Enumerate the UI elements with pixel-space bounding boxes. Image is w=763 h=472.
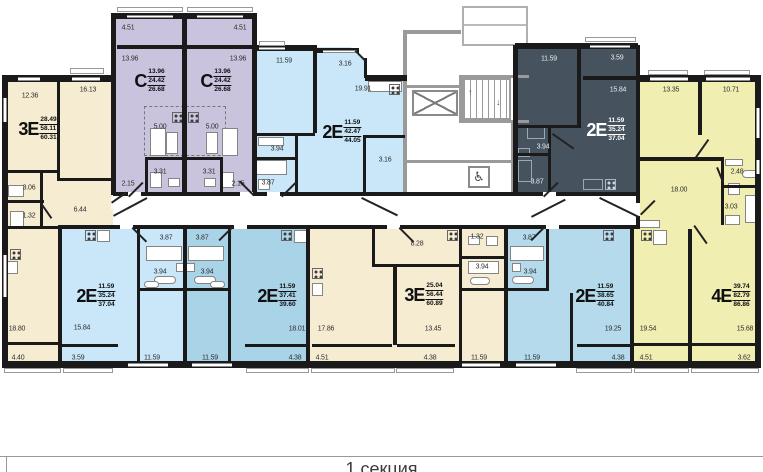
stove-burners-icon bbox=[605, 179, 616, 190]
fixture bbox=[583, 179, 603, 190]
fixture bbox=[168, 178, 180, 187]
wall bbox=[187, 157, 223, 160]
balcony-rail bbox=[311, 368, 395, 373]
wall bbox=[393, 264, 397, 345]
room-area-label: 10.71 bbox=[723, 87, 740, 94]
wall bbox=[2, 361, 761, 368]
wall bbox=[137, 288, 185, 291]
window bbox=[3, 98, 7, 122]
room-area-label: 18.80 bbox=[9, 326, 26, 333]
wall bbox=[313, 47, 317, 133]
wall bbox=[577, 344, 632, 347]
wall bbox=[546, 229, 549, 290]
fixture bbox=[210, 281, 225, 288]
room-area-label: 12.36 bbox=[22, 93, 39, 100]
window bbox=[756, 108, 760, 138]
floor-plan-screenshot: ↑ ↓ ♿ 3Е 28.4958.1160.31 С 13.9624.4226.… bbox=[0, 0, 763, 472]
room-area-label: 3.87 bbox=[531, 179, 544, 186]
wall bbox=[145, 157, 183, 160]
apartment-type: 2Е bbox=[586, 121, 606, 139]
room-area-label: 3.06 bbox=[23, 185, 36, 192]
wall bbox=[459, 229, 462, 361]
fixture bbox=[470, 277, 490, 285]
fixture bbox=[510, 246, 544, 261]
wall bbox=[363, 135, 366, 195]
fixture bbox=[512, 263, 521, 272]
room-area-label: 3.03 bbox=[725, 204, 738, 211]
stairs-up-arrow-icon: ↑ bbox=[468, 88, 473, 97]
window bbox=[650, 77, 688, 81]
window bbox=[197, 15, 243, 18]
room-area-label: 1.32 bbox=[23, 213, 36, 220]
balcony-rail bbox=[63, 368, 113, 373]
wall bbox=[513, 45, 518, 192]
stove-burners-icon bbox=[312, 268, 323, 279]
apartment-type: 3Е bbox=[404, 286, 424, 304]
apartment-type: 2Е bbox=[322, 123, 342, 141]
wall bbox=[636, 157, 724, 161]
room-area-label: 11.59 bbox=[541, 56, 557, 63]
window bbox=[323, 50, 357, 53]
wall bbox=[183, 225, 187, 367]
room-area-label: 16.13 bbox=[80, 87, 97, 94]
fixture bbox=[512, 276, 534, 284]
wall bbox=[633, 343, 690, 346]
stair-core-wall bbox=[459, 120, 529, 123]
room-area-label: 15.84 bbox=[74, 325, 91, 332]
stair-core-wall bbox=[403, 30, 461, 34]
fixture bbox=[188, 246, 224, 261]
window bbox=[516, 363, 556, 367]
room-area-label: 2.15 bbox=[232, 181, 245, 188]
fixture bbox=[725, 215, 740, 225]
wall bbox=[365, 75, 407, 81]
section-divider-tick bbox=[6, 456, 7, 472]
fixture bbox=[150, 128, 166, 156]
wall bbox=[187, 45, 253, 49]
stairs-icon bbox=[462, 78, 511, 120]
window bbox=[756, 160, 760, 174]
wall bbox=[117, 45, 183, 49]
room-area-label: 19.91 bbox=[355, 86, 372, 93]
room-area-label: 3.94 bbox=[524, 269, 537, 276]
room-area-label: 3.16 bbox=[339, 61, 352, 68]
wall bbox=[57, 178, 115, 181]
stove-burners-icon bbox=[447, 230, 458, 241]
fixture bbox=[312, 283, 323, 296]
balcony-rail bbox=[259, 41, 285, 46]
fixture bbox=[653, 230, 667, 245]
elevator-icon bbox=[412, 90, 458, 116]
balcony-rail bbox=[691, 368, 759, 373]
wall bbox=[459, 288, 508, 291]
stove-burners-icon bbox=[10, 249, 21, 260]
stair-core-wall bbox=[403, 160, 515, 163]
apartment-type: 2Е bbox=[257, 287, 277, 305]
room-area-label: 4.38 bbox=[424, 355, 437, 362]
section-divider-line bbox=[0, 456, 763, 457]
wall bbox=[4, 342, 61, 345]
door-opening bbox=[234, 225, 247, 229]
apartment-label-2e-d: 2Е 11.5937.4139.60 bbox=[257, 283, 296, 309]
room-area-label: 3.87 bbox=[523, 235, 536, 242]
balcony-rail bbox=[187, 7, 253, 12]
window bbox=[18, 77, 40, 81]
wall bbox=[508, 288, 549, 291]
section-title: 1 секция bbox=[345, 459, 417, 472]
stove-burners-icon bbox=[188, 112, 199, 123]
room-area-label: 1.32 bbox=[471, 234, 484, 241]
room-area-label: 3.59 bbox=[611, 55, 624, 62]
room-area-label: 4.51 bbox=[640, 355, 653, 362]
room-area-label: 3.94 bbox=[476, 264, 489, 271]
balcony-rail bbox=[70, 68, 104, 74]
window bbox=[259, 47, 285, 50]
room-area-label: 3.87 bbox=[160, 235, 173, 242]
room-area-label: 3.87 bbox=[262, 180, 275, 187]
wall bbox=[312, 344, 392, 347]
wall bbox=[40, 170, 43, 228]
room-area-label: 4.38 bbox=[289, 355, 302, 362]
room-area-label: 3.16 bbox=[379, 157, 392, 164]
room-area-label: 3.31 bbox=[154, 169, 167, 176]
stove-burners-icon bbox=[641, 230, 652, 241]
wall bbox=[698, 75, 702, 135]
room-area-label: 11.59 bbox=[471, 355, 487, 362]
wall bbox=[690, 343, 760, 346]
shaft-top-outline bbox=[462, 6, 528, 46]
wall bbox=[228, 229, 231, 361]
stair-core-wall bbox=[459, 75, 529, 78]
apartment-areas: 11.5935.2437.04 bbox=[607, 117, 625, 143]
wall bbox=[397, 344, 455, 347]
window bbox=[706, 77, 750, 81]
balcony-rail bbox=[704, 70, 750, 75]
room-area-label: 3.31 bbox=[203, 169, 216, 176]
apartment-type: С bbox=[134, 72, 146, 90]
wall bbox=[4, 200, 44, 203]
apartment-type: С bbox=[200, 72, 212, 90]
room-area-label: 11.59 bbox=[524, 355, 540, 362]
wall bbox=[145, 157, 148, 195]
fixture bbox=[186, 263, 195, 272]
wall bbox=[721, 185, 760, 188]
apartment-areas: 13.9624.4226.68 bbox=[213, 68, 231, 94]
window bbox=[192, 363, 232, 367]
room-area-label: 4.40 bbox=[12, 355, 25, 362]
room-area-label: 5.00 bbox=[206, 124, 219, 131]
stove-burners-icon bbox=[389, 84, 400, 95]
balcony-rail bbox=[117, 7, 183, 12]
shaft-divider bbox=[464, 24, 526, 26]
balcony-rail bbox=[585, 37, 636, 42]
window bbox=[72, 77, 100, 81]
room-area-label: 15.68 bbox=[737, 326, 754, 333]
wall bbox=[62, 344, 118, 347]
window bbox=[127, 15, 173, 18]
apartment-type: 2Е bbox=[575, 287, 595, 305]
room-area-label: 3.59 bbox=[72, 355, 85, 362]
corridor-floor bbox=[116, 196, 636, 225]
fixture bbox=[222, 128, 238, 156]
apartment-areas: 11.5938.6540.84 bbox=[596, 283, 614, 309]
balcony-rail bbox=[634, 368, 689, 373]
room-area-label: 13.35 bbox=[663, 87, 680, 94]
balcony-rail bbox=[576, 368, 632, 373]
wall bbox=[245, 344, 306, 347]
apartment-areas: 11.5942.4744.05 bbox=[343, 119, 361, 145]
room-area-label: 2.48 bbox=[731, 169, 744, 176]
wall bbox=[137, 229, 140, 361]
wheelchair-accessible-icon: ♿ bbox=[468, 166, 490, 188]
apartment-label-4e-a: 4Е 39.7482.7986.86 bbox=[711, 283, 750, 309]
door-opening bbox=[267, 192, 280, 196]
apartment-area-3e-a[interactable] bbox=[40, 181, 113, 229]
fixture bbox=[256, 160, 287, 175]
wall bbox=[111, 13, 116, 195]
wall bbox=[295, 133, 298, 195]
apartment-areas: 13.9624.4226.68 bbox=[147, 68, 165, 94]
fixture bbox=[206, 132, 218, 154]
stair-core-wall bbox=[403, 30, 407, 194]
wall bbox=[548, 125, 551, 192]
wall bbox=[375, 264, 462, 267]
room-area-label: 4.51 bbox=[122, 25, 135, 32]
apartment-areas: 25.0456.4460.89 bbox=[425, 282, 443, 308]
fixture bbox=[144, 281, 159, 288]
fixture bbox=[725, 159, 743, 166]
room-area-label: 3.94 bbox=[154, 269, 167, 276]
window bbox=[3, 255, 7, 297]
wall bbox=[182, 13, 187, 195]
apartment-type: 4Е bbox=[711, 287, 731, 305]
stair-core-wall bbox=[459, 75, 462, 123]
stove-burners-icon bbox=[85, 230, 96, 241]
apartment-area-s-a[interactable] bbox=[115, 13, 185, 195]
wall bbox=[636, 45, 640, 229]
wall bbox=[517, 125, 577, 128]
window bbox=[590, 45, 630, 48]
window bbox=[128, 363, 168, 367]
wall bbox=[583, 76, 636, 80]
room-area-label: 3.87 bbox=[196, 235, 209, 242]
fixture bbox=[486, 236, 498, 246]
room-area-label: 3.94 bbox=[201, 269, 214, 276]
room-area-label: 2.15 bbox=[122, 181, 135, 188]
apartment-type: 2Е bbox=[76, 287, 96, 305]
wall bbox=[363, 135, 405, 138]
room-area-label: 13.45 bbox=[425, 326, 442, 333]
apartment-label-2e-b: 2Е 11.5935.2437.04 bbox=[586, 117, 625, 143]
room-area-label: 15.84 bbox=[610, 87, 627, 94]
apartment-label-2e-e: 2Е 11.5938.6540.84 bbox=[575, 283, 614, 309]
room-area-label: 11.59 bbox=[276, 58, 292, 65]
apartment-label-2e-c: 2Е 11.5935.2437.04 bbox=[76, 283, 115, 309]
fixture bbox=[204, 178, 216, 187]
window bbox=[462, 363, 500, 367]
room-area-label: 6.44 bbox=[74, 207, 87, 214]
wall bbox=[4, 226, 58, 229]
wall bbox=[255, 157, 297, 160]
room-area-label: 18.01 bbox=[289, 326, 306, 333]
wall bbox=[504, 225, 508, 367]
apartment-type: 3Е bbox=[18, 120, 38, 138]
room-area-label: 13.96 bbox=[122, 56, 139, 63]
apartment-label-3e-a: 3Е 28.4958.1160.31 bbox=[18, 116, 57, 142]
stair-core-wall bbox=[403, 85, 459, 88]
wall bbox=[459, 256, 508, 259]
room-area-label: 3.94 bbox=[271, 146, 284, 153]
apartment-label-s-b: С 13.9624.4226.68 bbox=[200, 68, 231, 94]
wall bbox=[255, 133, 315, 136]
stove-burners-icon bbox=[603, 230, 614, 241]
wall bbox=[252, 13, 257, 195]
wall bbox=[372, 229, 375, 267]
room-area-label: 11.59 bbox=[202, 355, 218, 362]
wall bbox=[721, 157, 724, 225]
wall bbox=[517, 153, 549, 156]
wall bbox=[113, 192, 638, 196]
apartment-label-s-a: С 13.9624.4226.68 bbox=[134, 68, 165, 94]
room-area-label: 17.86 bbox=[318, 326, 335, 333]
balcony-rail bbox=[4, 368, 61, 373]
wall bbox=[185, 288, 231, 291]
room-area-label: 3.94 bbox=[537, 144, 550, 151]
room-area-label: 5.00 bbox=[154, 124, 167, 131]
wall bbox=[4, 170, 57, 173]
fixture bbox=[146, 246, 182, 261]
apartment-label-3e-b: 3Е 25.0456.4460.89 bbox=[404, 282, 443, 308]
apartment-areas: 11.5937.4139.60 bbox=[278, 283, 296, 309]
balcony-rail bbox=[246, 368, 309, 373]
apartment-areas: 39.7482.7986.86 bbox=[732, 283, 750, 309]
apartment-areas: 11.5935.2437.04 bbox=[97, 283, 115, 309]
room-area-label: 4.51 bbox=[234, 25, 247, 32]
room-area-label: 4.38 bbox=[612, 355, 625, 362]
floor-plan: ↑ ↓ ♿ 3Е 28.4958.1160.31 С 13.9624.4226.… bbox=[0, 0, 763, 472]
balcony-rail bbox=[396, 368, 454, 373]
door-opening bbox=[546, 225, 559, 229]
stairs-down-arrow-icon: ↓ bbox=[496, 98, 501, 107]
room-area-label: 13.96 bbox=[230, 56, 247, 63]
balcony-rail bbox=[648, 70, 688, 75]
wall bbox=[306, 225, 310, 367]
wall bbox=[570, 293, 573, 361]
fixture bbox=[166, 132, 178, 154]
wall bbox=[577, 45, 581, 128]
room-area-label: 8.28 bbox=[411, 241, 424, 248]
room-area-label: 19.54 bbox=[640, 326, 657, 333]
fixture bbox=[97, 230, 110, 242]
stove-burners-icon bbox=[281, 230, 292, 241]
apartment-areas: 28.4958.1160.31 bbox=[39, 116, 57, 142]
room-area-label: 18.00 bbox=[671, 187, 688, 194]
room-area-label: 4.51 bbox=[316, 355, 329, 362]
apartment-label-2e-a: 2Е 11.5942.4744.05 bbox=[322, 119, 361, 145]
room-area-label: 19.25 bbox=[605, 326, 622, 333]
room-area-label: 11.59 bbox=[144, 355, 160, 362]
room-area-label: 3.62 bbox=[738, 355, 751, 362]
wall bbox=[220, 157, 223, 195]
